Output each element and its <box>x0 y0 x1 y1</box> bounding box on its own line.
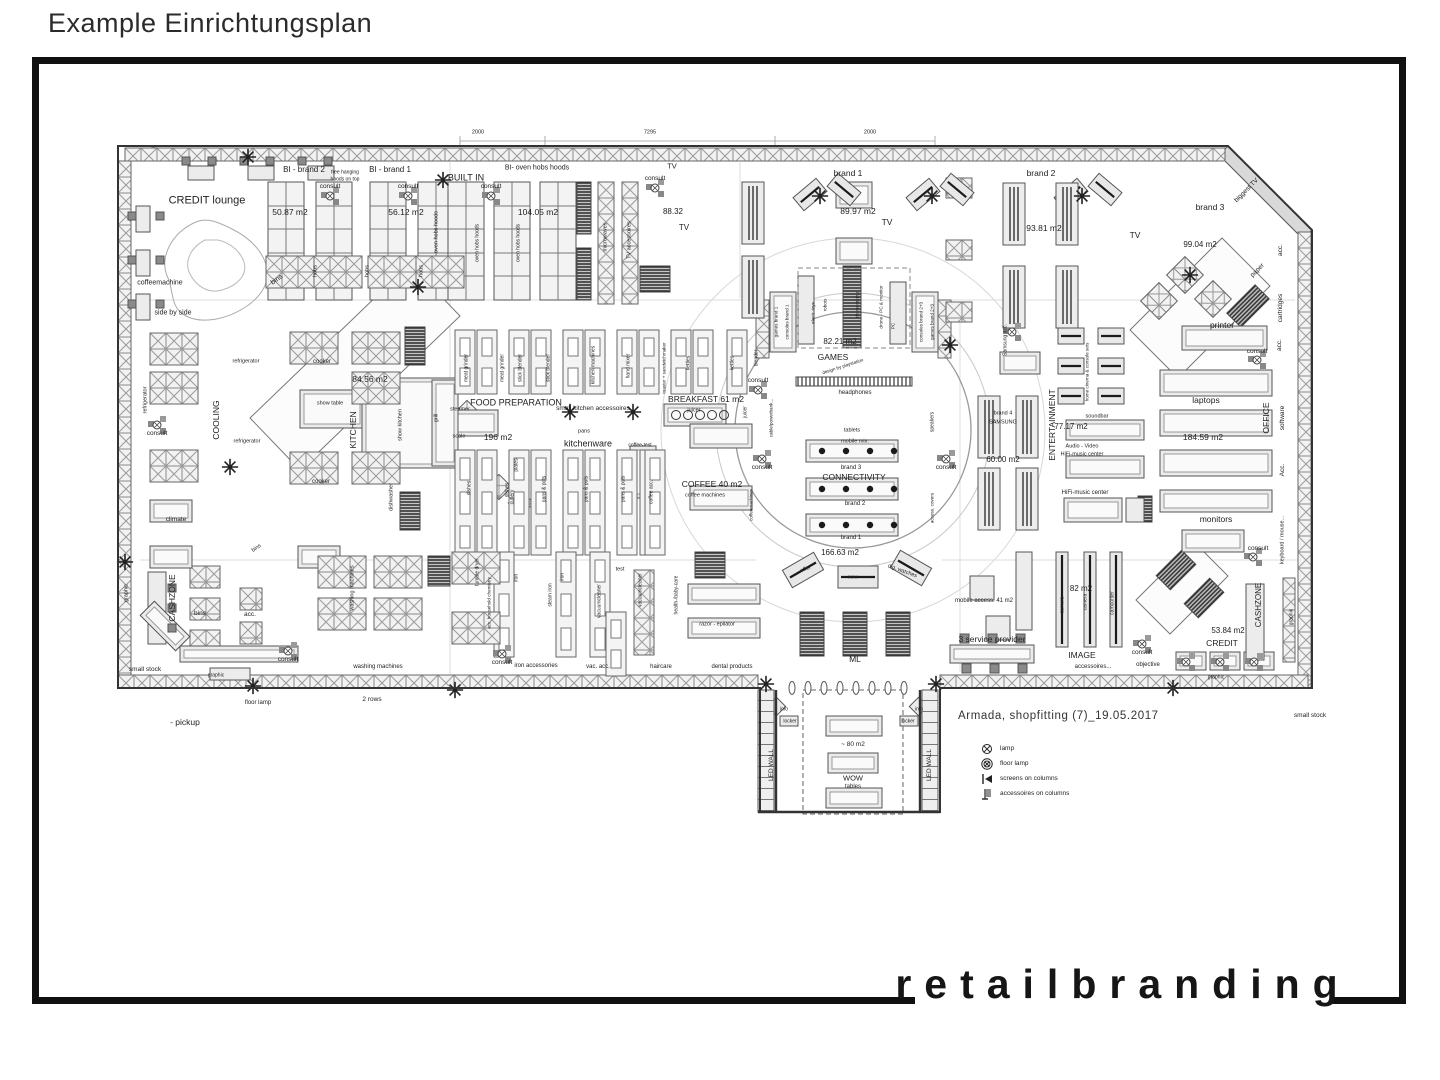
plan-label: consult <box>645 176 666 183</box>
plan-label: CREDIT lounge <box>169 196 246 207</box>
plan-label: Samsung acc. <box>1004 324 1009 356</box>
plan-label: hobs <box>313 265 319 277</box>
plan-label: coffeemachines <box>750 489 755 521</box>
logo-word-branding: branding <box>1071 961 1350 1008</box>
plan-label: refrigerator <box>233 359 260 365</box>
plan-label: access. covers <box>931 493 936 523</box>
plan-label: coffee acc. <box>650 480 655 504</box>
plan-label: vacuumcleaner <box>598 584 603 618</box>
plan-label: refrigerator <box>234 439 261 445</box>
plan-label: bins <box>194 611 206 618</box>
plan-label: 99.04 m2 <box>1183 241 1216 249</box>
plan-label: CREDIT <box>1206 639 1238 648</box>
plan-label: iron accessories <box>514 663 557 669</box>
plan-label: drone-racing <box>856 292 861 318</box>
plan-label: brand 1 <box>841 535 861 541</box>
plan-label: HiFi-music center <box>1061 452 1104 458</box>
screens-on-columns-icon <box>980 773 993 785</box>
plan-label: 7295 <box>644 130 656 136</box>
plan-label: games brand 1 <box>775 307 780 338</box>
plan-label: 104.05 m2 <box>518 208 558 217</box>
plan-label: objective <box>1136 662 1160 668</box>
plan-label: electr. toys <box>812 302 817 324</box>
plan-label: new <box>848 575 858 581</box>
plan-label: - pickup <box>170 718 200 727</box>
plan-label: consult <box>278 657 299 664</box>
plan-label: 88.32 <box>663 208 683 216</box>
plan-label: drone - PC & monitor <box>880 285 885 328</box>
plan-label: BI - brand 2 <box>283 166 325 174</box>
plan-label: 89.97 m2 <box>840 207 875 216</box>
plan-label: free hanging <box>331 171 359 176</box>
plan-label: show table <box>317 401 343 407</box>
plan-label: acc. household chemistry <box>488 577 493 629</box>
plan-label: PC <box>892 323 897 329</box>
plan-label: consult <box>1132 650 1153 657</box>
plan-label: 56.12 m2 <box>388 208 423 217</box>
plan-label: locker <box>901 720 914 725</box>
plan-label: acc. <box>244 612 256 619</box>
plan-label: info <box>915 708 923 713</box>
plan-label: accessoires... <box>1075 664 1112 670</box>
plan-label: mobile mix. <box>841 439 869 445</box>
plan-label: small stock <box>129 667 161 674</box>
plan-label: mobile access. 41 m2 <box>955 598 1013 604</box>
plan-label: graphic <box>208 674 224 679</box>
plan-label: locker <box>783 720 796 725</box>
legend-label: floor lamp <box>1000 760 1029 767</box>
plan-label: washing machines <box>350 565 356 610</box>
plan-label: cutlery <box>511 490 516 505</box>
plan-label: pans & pots <box>585 476 590 502</box>
plan-legend: lamp floor lamp screens on columns acces… <box>980 741 1069 801</box>
plan-label: pans <box>578 429 590 435</box>
plan-label: graphic <box>124 584 130 602</box>
plan-label: KITCHEN <box>349 411 358 448</box>
plan-label: WOW <box>843 774 863 782</box>
plan-label: software <box>1280 406 1287 431</box>
plan-label: steamer <box>450 407 470 413</box>
plan-label: iron <box>515 574 520 582</box>
plan-label: tumble dryer <box>476 558 481 586</box>
plan-label: razor - epilator <box>699 622 734 628</box>
plan-label: juicer <box>687 408 700 414</box>
plan-label: speakers <box>931 412 936 432</box>
accessories-on-columns-icon <box>980 788 993 800</box>
plan-label: washing machines <box>353 664 402 670</box>
plan-label: OFFICE <box>1262 402 1271 433</box>
plan-label: consult <box>748 378 769 385</box>
plan-label: consoles brand 2+3 <box>920 302 925 342</box>
plan-label: dental products <box>711 664 752 670</box>
plan-label: hobs <box>419 265 425 277</box>
plan-label: robots <box>824 299 829 312</box>
plan-label: refrigerator <box>143 387 149 414</box>
plan-label: microwaves <box>603 222 609 251</box>
plan-label: COOLING <box>212 400 221 439</box>
plan-label: 60.00 m2 <box>986 456 1019 464</box>
plan-label: brand 2 <box>1027 169 1056 178</box>
plan-label: coffee-test <box>628 444 651 449</box>
plan-label: camcorder <box>1111 591 1116 615</box>
plan-label: brand 3 <box>1196 203 1225 212</box>
plan-label: meat grinder <box>501 354 506 382</box>
plan-label: cooker <box>312 479 330 485</box>
plan-label: oven hobs hoods <box>476 224 481 262</box>
plan-label: COFFEE 40 m2 <box>682 480 742 489</box>
plan-label: consult <box>492 660 513 667</box>
plan-label: graphic <box>1208 676 1224 681</box>
plan-label: show kitchen <box>398 409 404 441</box>
plan-label: side by side <box>155 310 192 317</box>
floorplan-drawing <box>0 0 1440 1080</box>
plan-label: acc. <box>1278 244 1285 256</box>
plan-label: CASHZONE <box>1255 583 1263 627</box>
plan-label: BI - brand 1 <box>369 166 411 174</box>
plan-label: oven hobs hoods <box>517 224 522 262</box>
plan-label: LED WALL <box>927 749 934 781</box>
plan-label: iron <box>561 573 566 581</box>
plan-label: ~ 80 m2 <box>841 742 865 749</box>
plan-label: Audio - Video <box>1066 444 1099 450</box>
plan-label: dishes <box>468 481 473 495</box>
plan-label: TV <box>667 162 677 170</box>
plan-label: 2000 <box>864 130 876 136</box>
legend-label: lamp <box>1000 745 1014 752</box>
plan-label: consult <box>1248 546 1269 553</box>
plan-label: CASHZONE <box>168 574 177 621</box>
plan-label: hobs <box>365 265 371 277</box>
retail-branding-logo: retail branding <box>915 951 1331 1017</box>
plan-annotation: Armada, shopfitting (7)_19.05.2017 <box>958 710 1159 722</box>
plan-label: brand 4 <box>994 411 1013 417</box>
plan-label: TV <box>882 218 893 227</box>
plan-label: keyboard / mouse... <box>1280 516 1286 564</box>
plan-label: 84.56 m2 <box>352 375 387 384</box>
plan-label: juicer <box>744 406 749 418</box>
plan-label: test <box>616 567 625 573</box>
plan-label: kettles <box>731 356 736 370</box>
plan-label: brand 1 <box>834 169 863 178</box>
plan-label: laptops <box>1192 396 1219 405</box>
legend-label: screens on columns <box>1000 775 1058 782</box>
plan-label: BI- oven hobs hoods <box>505 165 569 172</box>
plan-label: home cinema & console sets <box>1086 343 1091 402</box>
plan-label: pans & pots <box>622 476 627 502</box>
legend-row: accessoires on columns <box>980 786 1069 801</box>
plan-label: oven hobs hoods <box>434 211 440 253</box>
plan-label: plates <box>515 458 520 471</box>
plan-label: 2 rows <box>362 697 381 704</box>
plan-label: 166.63 m2 <box>821 549 859 557</box>
plan-label: small kitchen accessoires <box>556 406 630 413</box>
plan-label: headphones <box>838 390 871 396</box>
plan-label: 50.87 m2 <box>272 208 307 217</box>
plan-label: blender <box>755 350 760 367</box>
legend-row: lamp <box>980 741 1069 756</box>
plan-label: 3 service provider <box>958 635 1025 644</box>
plan-label: TV <box>679 224 689 232</box>
plan-label: climate <box>166 517 187 524</box>
plan-label: BUILT IN <box>448 174 484 183</box>
plan-label: camera <box>1061 597 1066 614</box>
plan-label: 93.81 m2 <box>1026 224 1061 233</box>
plan-label: consult <box>752 465 773 472</box>
plan-label: hand mixer <box>627 354 632 379</box>
plan-label: acc. <box>1277 339 1284 351</box>
plan-label: 184.59 m2 <box>1183 433 1223 442</box>
plan-label: camera <box>1084 594 1089 611</box>
plan-label: vac. acc. <box>586 664 610 670</box>
legend-row: screens on columns <box>980 771 1069 786</box>
plan-label: stick blender <box>519 354 524 382</box>
plan-label: cooker <box>313 359 331 365</box>
plan-label: monitors <box>1200 515 1233 524</box>
floor-lamp-icon <box>980 758 993 770</box>
plan-label: stick blender <box>547 354 552 382</box>
plan-label: toaster + sandwichmaker <box>663 342 668 393</box>
plan-label: 82 m2 <box>1070 585 1092 593</box>
plan-label: meat grinder <box>465 354 470 382</box>
plan-label: CONNECTIVITY <box>822 473 885 482</box>
plan-label: consult <box>398 184 419 191</box>
plan-label: small stock <box>1294 713 1326 720</box>
plan-label: cable/powerbank... <box>770 399 775 438</box>
plan-label: Acc. <box>1280 464 1287 477</box>
plan-label: kitchen machines <box>592 346 597 385</box>
plan-label: LED WALL <box>769 749 776 781</box>
plan-label: consult <box>936 465 957 472</box>
plan-label: haircare <box>650 664 672 670</box>
lamp-icon <box>980 743 993 755</box>
logo-word-retail: retail <box>895 961 1071 1008</box>
plan-label: scale <box>453 434 466 440</box>
page: Example Einrichtungsplan <box>0 0 1440 1080</box>
plan-label: 2000 <box>472 130 484 136</box>
plan-label: TV <box>1130 231 1141 240</box>
plan-label: cartridges <box>1278 294 1285 323</box>
plan-label: graphic <box>1290 609 1295 625</box>
plan-label: 82.21 m2 <box>823 338 856 346</box>
plan-label: consult <box>320 184 341 191</box>
plan-label: brand 3 <box>841 465 861 471</box>
plan-label: tables <box>845 784 861 790</box>
plan-label: kitchenware <box>564 440 612 449</box>
plan-label: 53.84 m2 <box>1211 627 1244 635</box>
plan-label: FOOD PREPARATION <box>470 399 562 408</box>
plan-label: brand 2 <box>845 501 865 507</box>
plan-label: ML <box>849 655 861 664</box>
plan-label: grill <box>434 414 440 423</box>
plan-label: floor lamp <box>245 700 271 706</box>
plan-label: HiFi-music center <box>1062 490 1109 496</box>
plan-label: SAMSUNG <box>989 420 1017 426</box>
plan-label: games brand 2+3 <box>931 304 936 340</box>
plan-label: 196 m2 <box>484 433 512 442</box>
plan-label: consult <box>481 184 502 191</box>
plan-label: vacuumcleaner <box>639 573 644 607</box>
legend-label: accessoires on columns <box>1000 790 1069 797</box>
plan-label: tablets <box>844 428 860 434</box>
plan-label: consult <box>147 431 168 438</box>
plan-label: IMAGE <box>1068 651 1095 660</box>
plan-label: info <box>780 708 788 713</box>
legend-row: floor lamp <box>980 756 1069 771</box>
plan-label: coffee machines <box>685 493 725 499</box>
plan-label: kettles <box>687 356 692 370</box>
plan-label: dishwasher <box>389 483 395 511</box>
plan-label: coffeemachine <box>137 280 182 287</box>
plan-label: health-/baby-care <box>675 576 680 615</box>
plan-label: consoles brand 1 <box>786 305 791 340</box>
plan-label: TV accessoires <box>627 221 633 259</box>
plan-label: 77.17 m2 <box>1054 423 1087 431</box>
plan-label: GAMES <box>818 353 849 362</box>
plan-label: pans & pots <box>543 476 548 502</box>
plan-label: BREAKFAST 61 m2 <box>668 395 744 404</box>
plan-label: hoods on top <box>331 178 360 183</box>
plan-label: consult <box>1247 349 1268 356</box>
plan-label: steam iron <box>549 583 554 606</box>
plan-label: printer <box>1210 321 1234 330</box>
plan-label: soundbar <box>1086 414 1109 420</box>
